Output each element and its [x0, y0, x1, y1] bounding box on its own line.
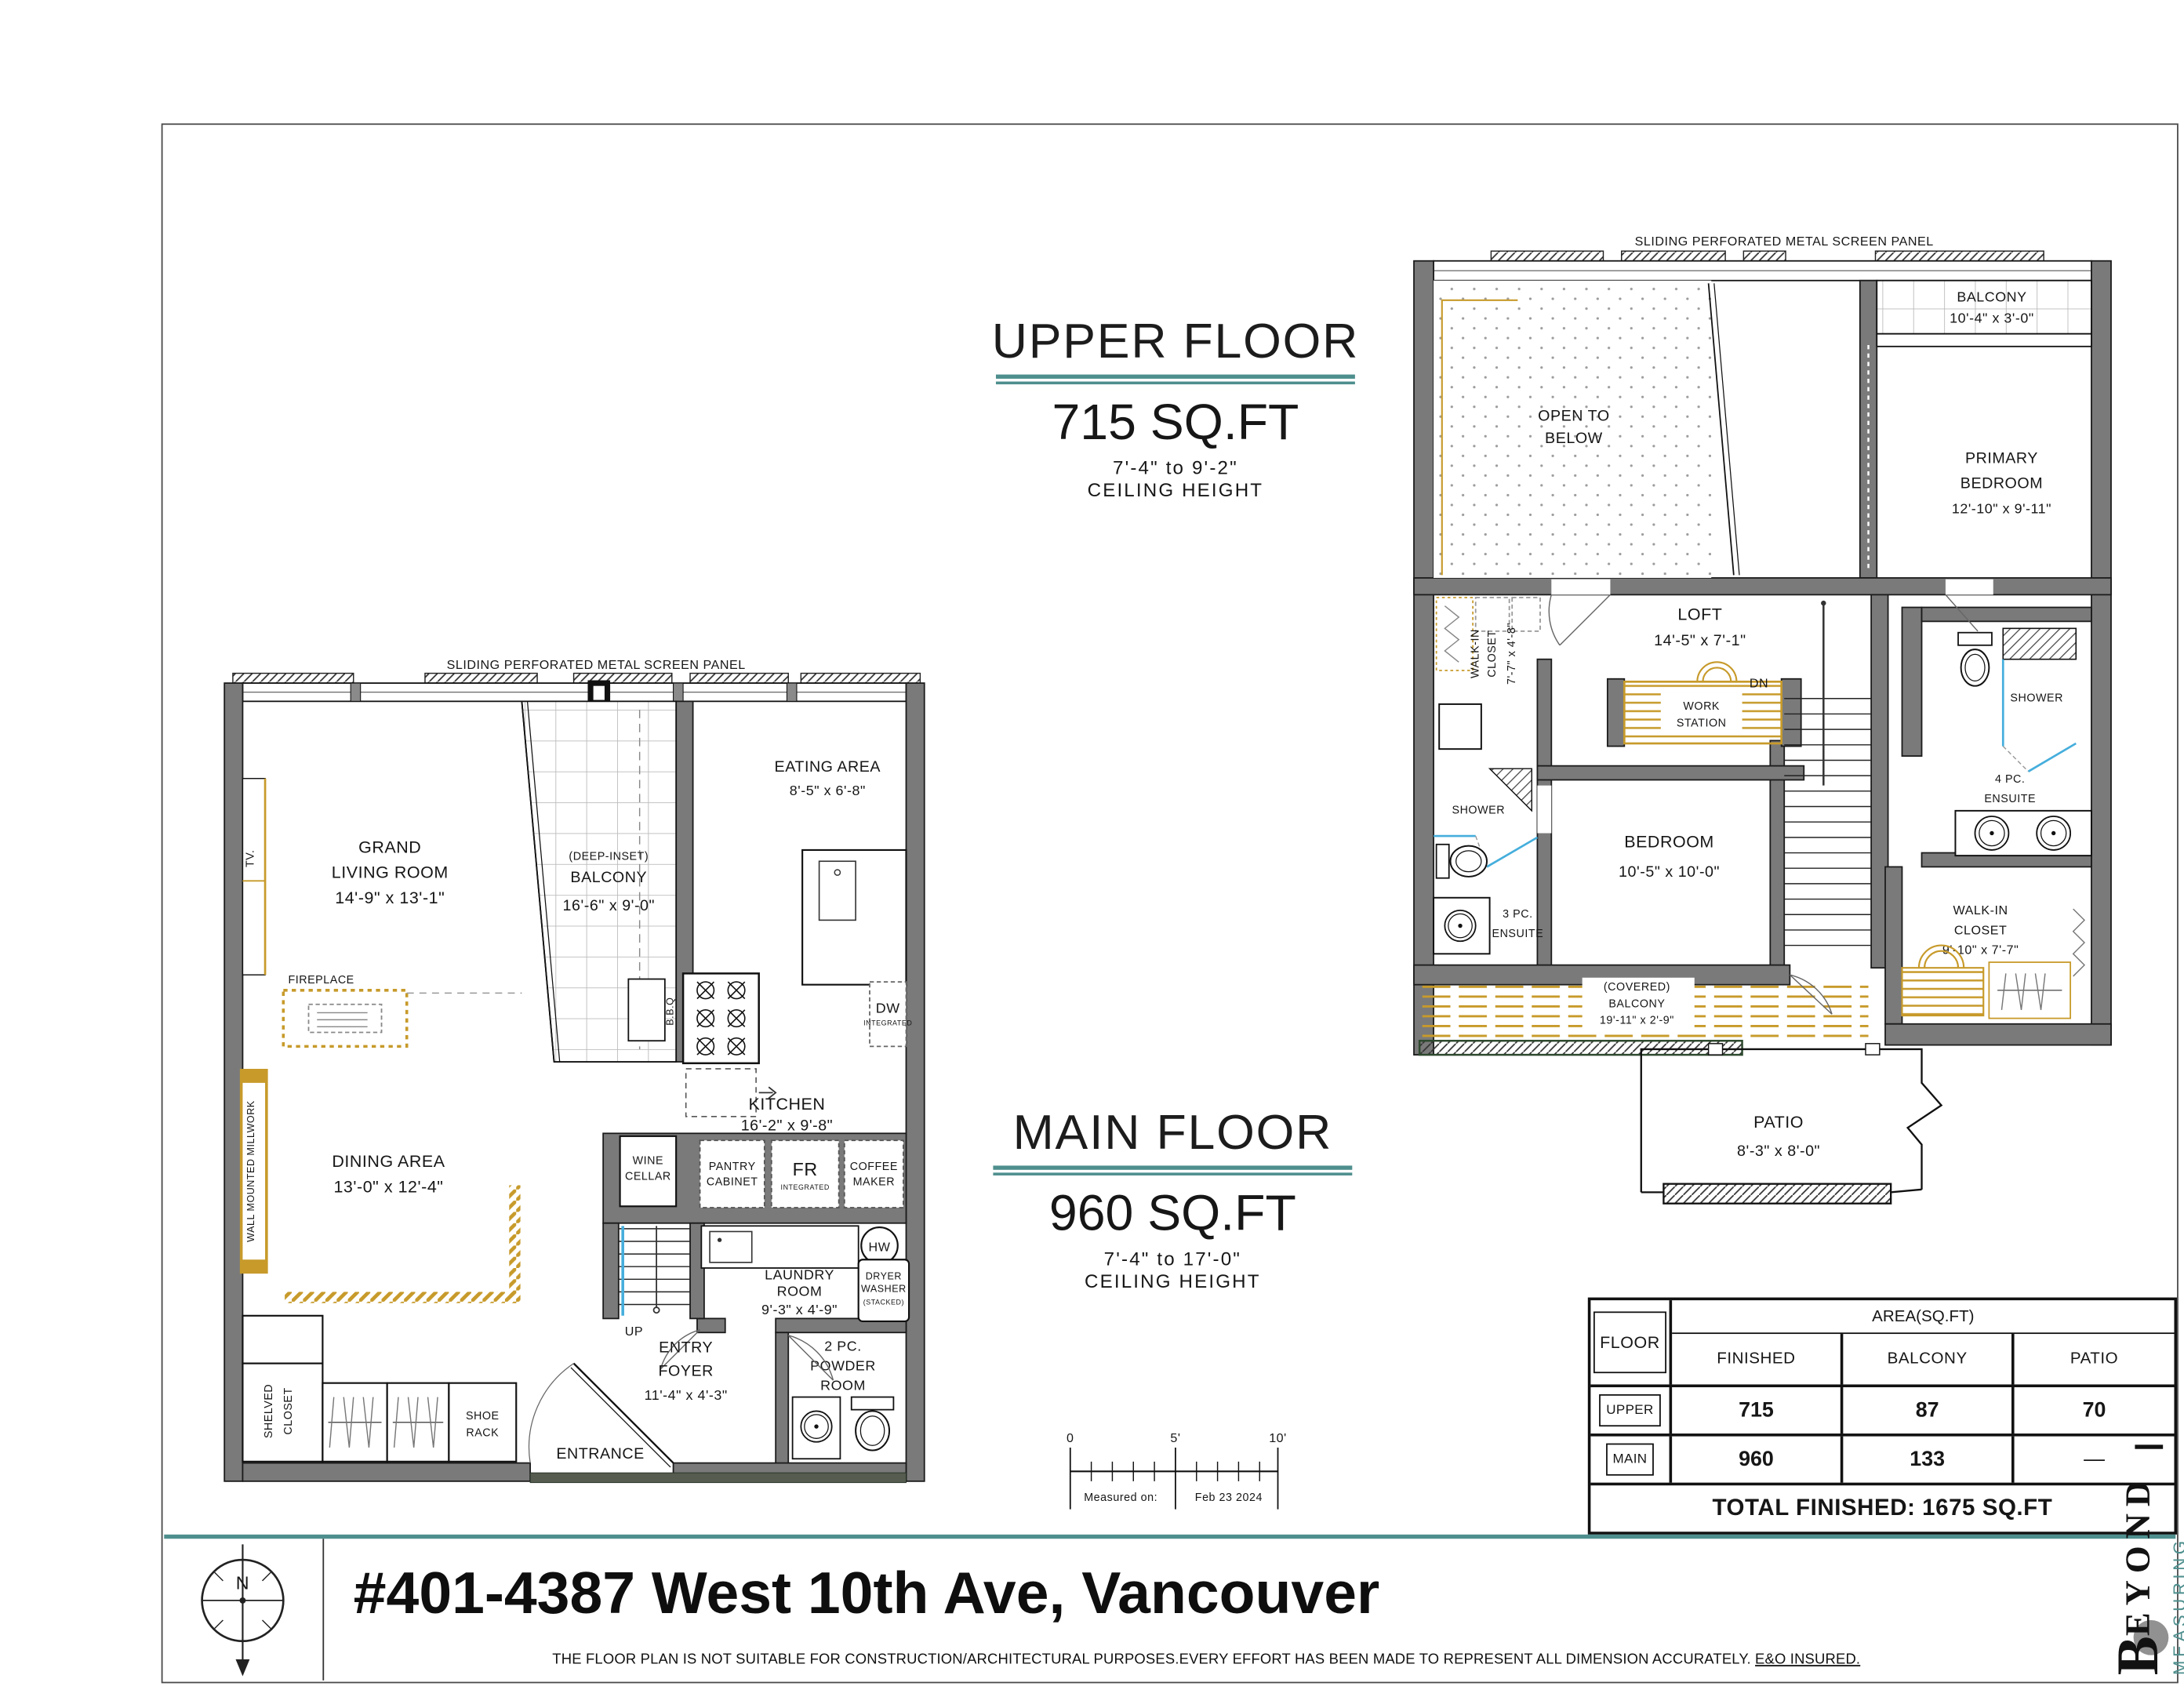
main-floor-plan: SLIDING PERFORATED METAL SCREEN PANEL	[210, 656, 939, 1498]
shower-label: SHOWER	[2010, 692, 2063, 704]
bedroom: BEDROOM 10'-5" x 10'-0"	[1619, 832, 1720, 881]
tv-label: TV.	[245, 849, 257, 867]
dryer-label: DRYER	[866, 1270, 902, 1281]
upper-balcony-label: BALCONY	[1957, 289, 2026, 305]
title-underline	[996, 375, 1355, 380]
shelved-closet-label: CLOSET	[282, 1387, 295, 1434]
primary-label: PRIMARY	[1965, 449, 2038, 467]
walk-in-closet-right: WALK-IN CLOSET 9'-10" x 7'-7"	[1902, 903, 2084, 1018]
kitchen-dims: 16'-2" x 9'-8"	[741, 1117, 833, 1135]
logo-rule	[2135, 1444, 2163, 1448]
work-station-label: STATION	[1677, 718, 1727, 730]
upper-floor-title: UPPER FLOOR	[930, 314, 1421, 371]
patio-label: PATIO	[1753, 1113, 1804, 1132]
up-label: UP	[625, 1324, 643, 1339]
scale-bar: 0 5' 10' Measured on: Feb 23 2024	[1049, 1423, 1310, 1518]
upper-floor-plan: SLIDING PERFORATED METAL SCREEN PANEL	[1403, 217, 2125, 1234]
door-swing	[1549, 594, 1610, 645]
title-underline	[993, 1173, 1352, 1175]
main-balcony: 133	[1843, 1437, 2014, 1483]
entry-label: FOYER	[658, 1363, 713, 1380]
upper-balcony-dims: 10'-4" x 3'-0"	[1950, 310, 2034, 325]
upper-finished: 715	[1672, 1387, 1843, 1433]
pantry-cabinet: PANTRY CABINET	[700, 1140, 765, 1208]
bedroom-dims: 10'-5" x 10'-0"	[1619, 863, 1720, 881]
laundry-dims: 9'-3" x 4'-9"	[761, 1302, 838, 1317]
powder-room: 2 PC. POWDER ROOM	[788, 1335, 893, 1459]
eating-dims: 8'-5" x 6'-8"	[790, 783, 866, 798]
wic-left-label: CLOSET	[1486, 630, 1499, 677]
powder-label: POWDER	[810, 1358, 876, 1374]
washer-label: WASHER	[861, 1283, 907, 1294]
covered-balcony-label: (COVERED)	[1604, 981, 1670, 994]
screen-panel-label: SLIDING PERFORATED METAL SCREEN PANEL	[447, 658, 746, 672]
patio: PATIO 8'-3" x 8'-0"	[1641, 1044, 1942, 1204]
covered-balcony-dims: 19'-11" x 2'-9"	[1600, 1015, 1674, 1027]
open-to-below: OPEN TO BELOW	[1434, 281, 1739, 578]
upper-ceiling-range: 7'-4" to 9'-2"	[930, 457, 1421, 478]
tv-niche: TV.	[242, 779, 265, 975]
table-col-finished: FINISHED	[1672, 1334, 1843, 1384]
main-floor-area: 960 SQ.FT	[927, 1184, 1418, 1243]
main-finished: 960	[1672, 1437, 1843, 1483]
screen-panel-top: SLIDING PERFORATED METAL SCREEN PANEL	[1491, 234, 2044, 261]
upper-floor-area: 715 SQ.FT	[930, 393, 1421, 452]
wic-left-label: WALK-IN	[1469, 629, 1481, 678]
wine-cellar-label: CELLAR	[625, 1170, 671, 1183]
millwork-zigzag	[509, 1185, 520, 1303]
north-label: N	[235, 1573, 249, 1593]
powder-label: ROOM	[820, 1378, 866, 1393]
dishwasher: DW INTEGRATED	[863, 982, 912, 1046]
entrance-threshold	[530, 1473, 906, 1483]
bbq-grill	[628, 979, 665, 1041]
pantry-label: PANTRY	[709, 1161, 756, 1173]
disclaimer-main: THE FLOOR PLAN IS NOT SUITABLE FOR CONST…	[552, 1652, 1750, 1668]
table-total: TOTAL FINISHED: 1675 SQ.FT	[1590, 1485, 2174, 1532]
wic-left-dims: 7'-7" x 4'-8"	[1506, 623, 1518, 685]
fridge-sub: INTEGRATED	[781, 1183, 830, 1191]
living-label: LIVING ROOM	[332, 863, 449, 882]
appliance-row: WINE CELLAR PANTRY CABINET FR INTEGRATED…	[620, 1136, 903, 1208]
row-label-main: MAIN	[1606, 1444, 1655, 1476]
shower-label: SHOWER	[1452, 804, 1506, 816]
logo-initial: B	[2107, 1636, 2171, 1675]
wic-right-label: WALK-IN	[1953, 903, 2008, 917]
shelved-closet-label: SHELVED	[263, 1384, 275, 1438]
ensuite4-label: ENSUITE	[1984, 793, 2036, 805]
north-compass-icon: N	[163, 1539, 320, 1679]
table-col-balcony: BALCONY	[1843, 1334, 2014, 1384]
millwork-zigzag	[285, 1292, 518, 1303]
upper-patio: 70	[2015, 1387, 2175, 1433]
logo-wordmark: BEYOND	[2110, 1473, 2168, 1674]
ensuite4-label: 4 PC.	[1995, 773, 2025, 786]
open-below-label: BELOW	[1545, 430, 1603, 447]
table-row: MAIN 960 133 —	[1590, 1437, 2174, 1486]
footer-divider	[163, 1535, 2175, 1539]
dining-dims: 13'-0" x 12'-4"	[333, 1177, 443, 1196]
kitchen-island	[802, 850, 906, 985]
ensuite3-label: 3 PC.	[1503, 908, 1532, 921]
fireplace: FIREPLACE	[283, 974, 521, 1046]
entry-foyer: ENTRY FOYER 11'-4" x 4'-3" ENTRANCE	[529, 1339, 728, 1467]
main-ceiling-label: CEILING HEIGHT	[927, 1271, 1418, 1292]
living-dims: 14'-9" x 13'-1"	[335, 888, 445, 907]
primary-label: BEDROOM	[1961, 474, 2043, 492]
screen-panel-top: SLIDING PERFORATED METAL SCREEN PANEL	[233, 658, 920, 683]
row-label-upper: UPPER	[1599, 1394, 1660, 1426]
shoe-rack-label: SHOE	[466, 1410, 500, 1423]
upper-balcony: BALCONY 10'-4" x 3'-0"	[1877, 281, 2091, 347]
deep-inset-balcony: B.B.Q (DEEP-INSET) BALCONY 16'-6" x 9'-0…	[521, 701, 676, 1062]
scale-tick-0: 0	[1067, 1431, 1074, 1445]
dn-label: DN	[1750, 676, 1768, 690]
main-floor-title-block: MAIN FLOOR 960 SQ.FT 7'-4" to 17'-0" CEI…	[927, 1105, 1418, 1292]
laundry-label: ROOM	[777, 1284, 823, 1299]
wine-cellar: WINE CELLAR	[620, 1136, 677, 1206]
table-area-header: AREA(SQ.FT)	[1672, 1300, 2174, 1334]
open-below-label: OPEN TO	[1538, 408, 1610, 425]
dishwasher-label: DW	[876, 1000, 900, 1016]
work-station: WORK STATION	[1608, 662, 1801, 746]
loft-dims: 14'-5" x 7'-1"	[1654, 632, 1746, 649]
walk-in-closet-left: WALK-IN CLOSET 7'-7" x 4'-8"	[1437, 598, 1540, 749]
coffee-label: COFFEE	[850, 1161, 898, 1173]
loft: LOFT 14'-5" x 7'-1" WORK STATION	[1608, 605, 1801, 747]
bedroom-label: BEDROOM	[1624, 832, 1714, 851]
main-floor-title: MAIN FLOOR	[927, 1105, 1418, 1161]
title-underline	[996, 382, 1355, 384]
laundry-label: LAUNDRY	[765, 1266, 834, 1282]
coffee-label: MAKER	[853, 1175, 896, 1188]
balcony-dims: 16'-6" x 9'-0"	[563, 897, 655, 914]
entry-dims: 11'-4" x 4'-3"	[645, 1387, 728, 1403]
address-title: #401-4387 West 10th Ave, Vancouver	[354, 1560, 1560, 1627]
scale-tick-10: 10'	[1269, 1431, 1287, 1445]
millwork-label: WALL MOUNTED MILLWORK	[245, 1100, 256, 1242]
living-label: GRAND	[358, 838, 421, 857]
table-floor-header: FLOOR	[1593, 1311, 1667, 1373]
eating-label: EATING AREA	[775, 758, 881, 776]
main-ceiling-range: 7'-4" to 17'-0"	[927, 1248, 1418, 1270]
work-station-label: WORK	[1683, 700, 1720, 713]
wall-mounted-millwork: WALL MOUNTED MILLWORK	[242, 1070, 267, 1273]
fridge: FR INTEGRATED	[772, 1140, 839, 1208]
scale-tick-5: 5'	[1170, 1431, 1180, 1445]
closets: SHELVED CLOSET SHOE RACK	[242, 1316, 516, 1462]
patio-dims: 8'-3" x 8'-0"	[1737, 1143, 1820, 1160]
ensuite-4pc: SHOWER 4 PC. ENSUITE	[1955, 628, 2091, 856]
balcony-label: BALCONY	[570, 869, 647, 886]
north-arrow-box: N	[163, 1539, 323, 1681]
table-col-patio: PATIO	[2015, 1334, 2175, 1384]
wic-right-label: CLOSET	[1954, 923, 2008, 937]
shoe-rack: SHOE RACK	[449, 1383, 516, 1462]
upper-floor-title-block: UPPER FLOOR 715 SQ.FT 7'-4" to 9'-2" CEI…	[930, 314, 1421, 501]
coffee-maker: COFFEE MAKER	[845, 1140, 903, 1208]
area-table: FLOOR AREA(SQ.FT) FINISHED BALCONY PATIO…	[1588, 1298, 2177, 1535]
shoe-rack-label: RACK	[466, 1427, 499, 1440]
dining-label: DINING AREA	[332, 1152, 445, 1171]
hw-label: HW	[869, 1241, 891, 1255]
bbq-label: B.B.Q	[665, 997, 676, 1026]
entry-label: ENTRY	[659, 1339, 713, 1356]
fridge-label: FR	[793, 1159, 818, 1179]
entrance-label: ENTRANCE	[556, 1445, 644, 1463]
measured-on-label: Measured on:	[1084, 1492, 1157, 1504]
primary-bedroom: PRIMARY BEDROOM 12'-10" x 9'-11"	[1869, 345, 2051, 572]
covered-balcony-label: BALCONY	[1608, 997, 1665, 1010]
ensuite-3pc: 3 PC. ENSUITE	[1434, 845, 1543, 954]
kitchen-label: KITCHEN	[748, 1095, 825, 1114]
up-ceiling-label: CEILING HEIGHT	[930, 480, 1421, 501]
dining-area: DINING AREA 13'-0" x 12'-4" WALL MOUNTED…	[242, 1070, 521, 1303]
primary-dims: 12'-10" x 9'-11"	[1952, 501, 2051, 517]
upper-balcony: 87	[1843, 1387, 2014, 1433]
disclaimer-text: THE FLOOR PLAN IS NOT SUITABLE FOR CONST…	[379, 1652, 2034, 1668]
logo-subtext: MEASURING	[2170, 1537, 2184, 1675]
powder-label: 2 PC.	[824, 1339, 861, 1354]
washer-dryer: DRYER WASHER (STACKED)	[859, 1259, 909, 1321]
measured-date: Feb 23 2024	[1195, 1492, 1263, 1504]
loft-label: LOFT	[1677, 605, 1722, 624]
grand-living-room: GRAND LIVING ROOM 14'-9" x 13'-1" TV. FI…	[242, 779, 521, 1047]
table-row: UPPER 715 87 70	[1590, 1387, 2174, 1437]
wine-cellar-label: WINE	[633, 1155, 663, 1168]
kitchen: DW INTEGRATED KITCHEN 16'-2" x 9'-8"	[683, 850, 912, 1135]
covered-balcony: (COVERED) BALCONY 19'-11" x 2'-9"	[1419, 975, 1868, 1055]
dishwasher-sub: INTEGRATED	[863, 1019, 912, 1027]
logo-rest: EYOND	[2120, 1473, 2157, 1635]
pantry-label: CABINET	[707, 1175, 758, 1188]
fireplace-label: FIREPLACE	[288, 974, 354, 987]
eating-area: EATING AREA 8'-5" x 6'-8"	[775, 758, 881, 798]
beyond-measuring-logo: BEYOND MEASURING	[2107, 1430, 2184, 1677]
title-underline	[993, 1165, 1352, 1170]
floor-plan-sheet: UPPER FLOOR 715 SQ.FT 7'-4" to 9'-2" CEI…	[0, 0, 2184, 1670]
disclaimer-eo-insured: E&O INSURED.	[1755, 1652, 1860, 1668]
screen-panel-label: SLIDING PERFORATED METAL SCREEN PANEL	[1635, 234, 1934, 249]
ensuite3-label: ENSUITE	[1492, 928, 1544, 940]
balcony-label: (DEEP-INSET)	[569, 850, 649, 863]
stacked-label: (STACKED)	[863, 1298, 904, 1306]
stairs-up: UP	[619, 1226, 690, 1339]
powder-toilet	[852, 1397, 894, 1451]
hanging-closet	[322, 1383, 449, 1462]
